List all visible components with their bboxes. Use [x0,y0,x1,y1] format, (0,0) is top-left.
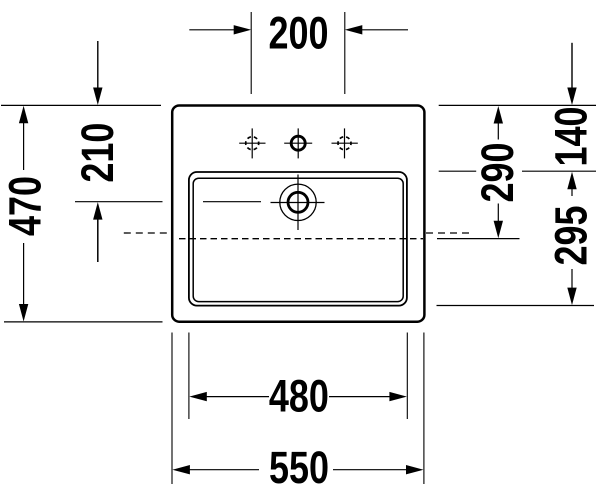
svg-text:295: 295 [546,205,597,265]
svg-text:140: 140 [546,106,597,166]
svg-text:200: 200 [268,7,328,58]
svg-text:210: 210 [72,123,123,183]
svg-text:480: 480 [269,371,329,422]
svg-text:290: 290 [472,142,523,202]
svg-text:550: 550 [269,442,329,493]
svg-text:470: 470 [0,176,50,236]
